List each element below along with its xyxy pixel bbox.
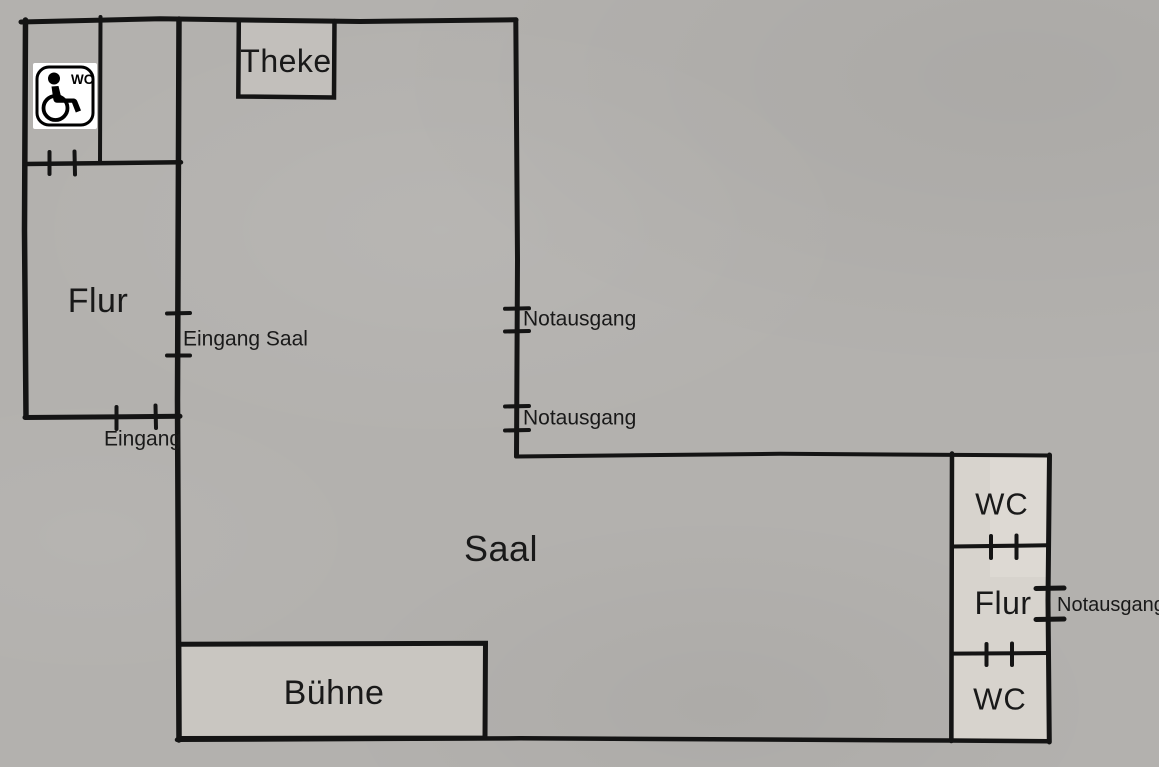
floor-plan-drawing: WC [0, 0, 1159, 767]
door-label-notausgang-right: Notausgang [1057, 595, 1159, 615]
door-tick [1036, 619, 1064, 620]
sign-wc-label: WC [71, 72, 94, 87]
door-tick [1036, 588, 1064, 589]
wall-saal-middle [516, 20, 518, 456]
wall-wc-room-divider [100, 17, 101, 163]
door-tick [167, 313, 190, 314]
accessible-wc-sign: WC [33, 63, 97, 129]
door-label-notausgang-top: Notausgang [523, 309, 636, 330]
wall-right-block-divider [951, 454, 952, 742]
wall-top [21, 19, 516, 22]
door-label-notausgang-mid: Notausgang [523, 408, 636, 429]
room-label-wc-top-right: WC [975, 489, 1029, 520]
door-tick [156, 406, 157, 429]
wall-left [25, 20, 27, 417]
wall-right-outer [1048, 455, 1050, 742]
room-label-flur-left: Flur [68, 284, 129, 318]
door-tick [505, 430, 529, 431]
room-label-saal: Saal [464, 531, 538, 567]
wall-main-left [178, 19, 180, 740]
wheelchair-head [48, 73, 60, 85]
interior-boxes [181, 21, 486, 739]
room-fills [182, 23, 1048, 740]
wall-wc-flur-divider-bottom [952, 653, 1048, 654]
door-tick [505, 331, 529, 332]
door-tick [75, 152, 76, 175]
door-label-eingang-saal: Eingang Saal [183, 329, 308, 350]
room-label-buehne: Bühne [284, 676, 385, 710]
room-label-flur-right: Flur [974, 587, 1031, 619]
door-label-eingang: Eingang [104, 429, 181, 450]
room-label-wc-bottom-right: WC [973, 684, 1027, 715]
wall-saal-right-horizontal [516, 454, 1049, 457]
room-label-theke: Theke [240, 45, 331, 77]
walls [21, 17, 1050, 742]
wall-wc-flur-divider-top [952, 545, 1048, 546]
floor-plan: WC Theke Flur Saal Bühne WC Flur WC Eing… [0, 0, 1159, 767]
